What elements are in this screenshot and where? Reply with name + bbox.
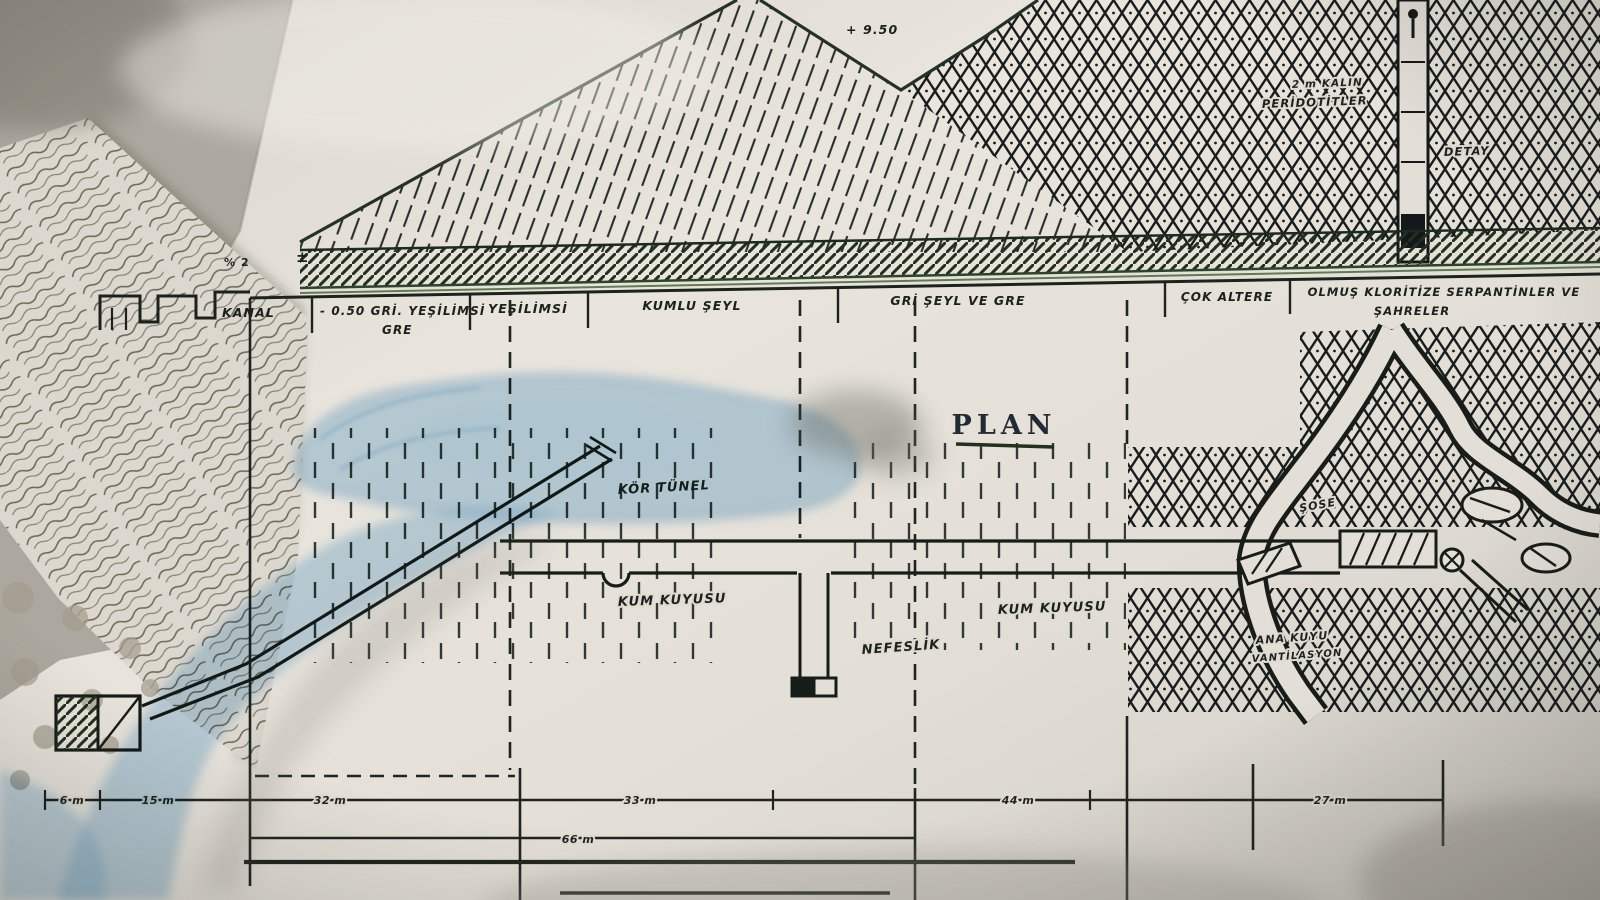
- plan-drawing: + 9.50 2 m KALIN PERİDOTİTLER DETAY % 2 …: [0, 0, 1600, 900]
- photographed-mine-plan: + 9.50 2 m KALIN PERİDOTİTLER DETAY % 2 …: [0, 0, 1600, 900]
- photo-overlays: [0, 0, 1600, 900]
